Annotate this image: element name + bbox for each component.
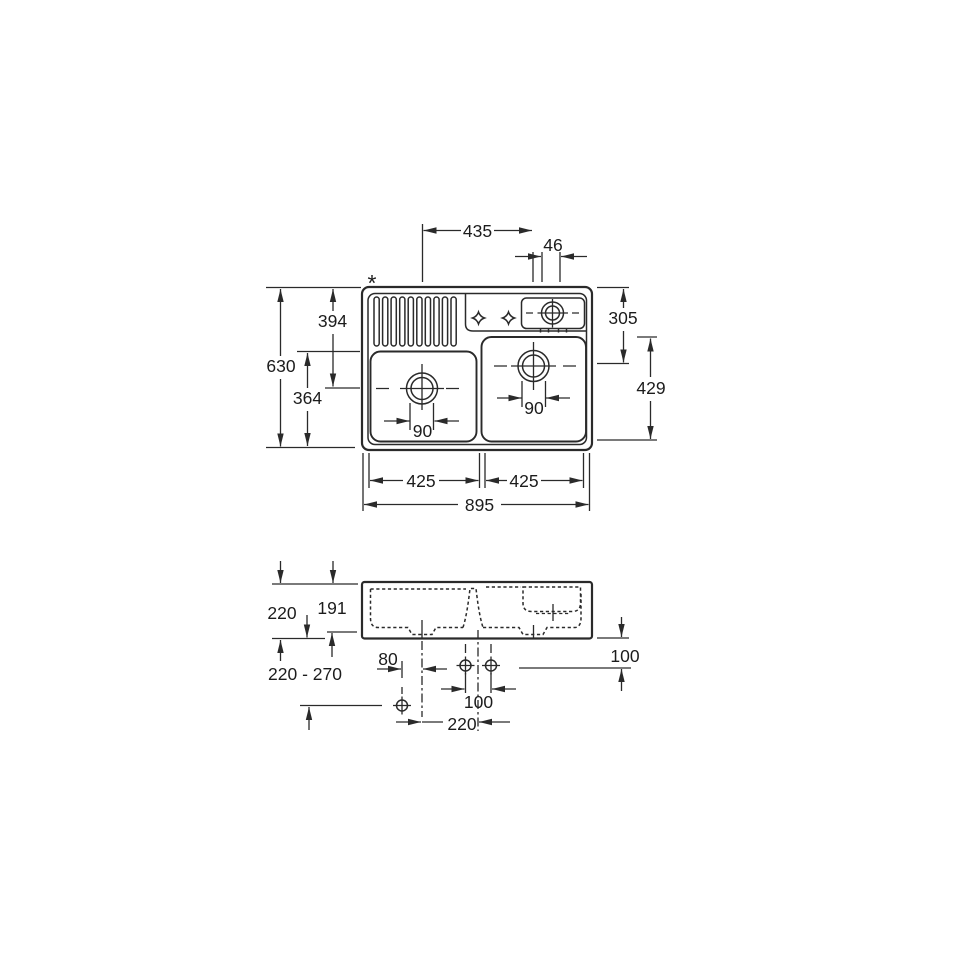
sink-dimension-diagram: 435 46 630 394 364 (0, 0, 970, 971)
tap-hole-icon (503, 312, 515, 324)
dim-drain-spacing-label: 435 (463, 221, 492, 241)
dim-overall-width-label: 895 (465, 495, 494, 515)
hidden-bowl-contours (371, 587, 582, 635)
dim-drain-spacing: 435 (423, 221, 534, 282)
dim-waste-offset-label: 80 (378, 649, 398, 669)
dim-top-to-right-drain-label: 305 (608, 308, 637, 328)
fixing-hole-icon (482, 644, 500, 675)
drainboard-ribs-icon (374, 297, 456, 346)
side-view: 220 191 220 - 270 100 (267, 561, 639, 734)
dim-drain-centre-spacing: 220 (396, 714, 510, 734)
dim-right-bowl-length: 429 (597, 337, 666, 440)
dim-waste-offset: 80 (377, 649, 447, 694)
right-drain-icon (494, 342, 576, 390)
dim-right-bowl-length-label: 429 (636, 378, 665, 398)
dim-right-bowl-width-label: 425 (509, 471, 538, 491)
dim-overall-depth-label: 630 (266, 356, 295, 376)
dim-rear-clearance-label: 100 (610, 646, 639, 666)
dim-mounting-range-label: 220 - 270 (268, 664, 342, 684)
faucet-hole-icon (526, 299, 579, 328)
dim-bowl-widths: 425 425 895 (363, 453, 590, 515)
waste-hole-icon (393, 697, 411, 715)
dim-left-bowl-width-label: 425 (406, 471, 435, 491)
dim-top-to-left-drain-label: 394 (318, 311, 347, 331)
technical-drawing: 435 46 630 394 364 (0, 0, 970, 971)
dim-rear-clearance: 100 (519, 617, 640, 691)
sink-body-section (362, 582, 592, 639)
tap-hole-icon (473, 312, 485, 324)
dim-bowl-inner-depth-label: 191 (317, 598, 346, 618)
dim-hole-spacing-label: 100 (464, 692, 493, 712)
dim-right-drain-diameter-label: 90 (524, 398, 544, 418)
dim-top-to-right-drain: 305 (597, 288, 638, 364)
dim-rim-height-label: 220 (267, 603, 296, 623)
dim-left-bowl-depth: 364 (293, 352, 360, 447)
dim-mounting-range: 220 - 270 (268, 640, 342, 730)
top-view: 435 46 630 394 364 (266, 221, 666, 515)
asterisk-note: * (368, 270, 377, 296)
dim-tap-hole-spacing-label: 46 (543, 235, 562, 255)
fixing-hole-icon (457, 644, 475, 675)
dim-bowl-inner-depth: 191 (317, 561, 346, 657)
left-drain-icon (376, 364, 459, 410)
dim-left-bowl-depth-label: 364 (293, 388, 322, 408)
dim-drain-centre-spacing-label: 220 (447, 714, 476, 734)
dim-tap-hole-spacing: 46 (515, 235, 587, 282)
dim-top-to-left-drain: 394 (318, 289, 360, 388)
dim-left-drain-diameter-label: 90 (413, 421, 433, 441)
